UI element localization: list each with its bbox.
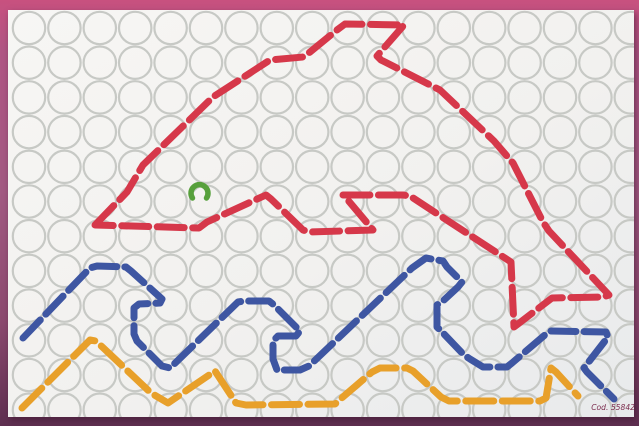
photo-frame: Cod. 55842 <box>0 0 639 426</box>
board-code-label: Cod. 55842 <box>591 403 634 412</box>
pegboard-svg: Cod. 55842 <box>8 10 634 417</box>
pegboard: Cod. 55842 <box>8 10 634 417</box>
